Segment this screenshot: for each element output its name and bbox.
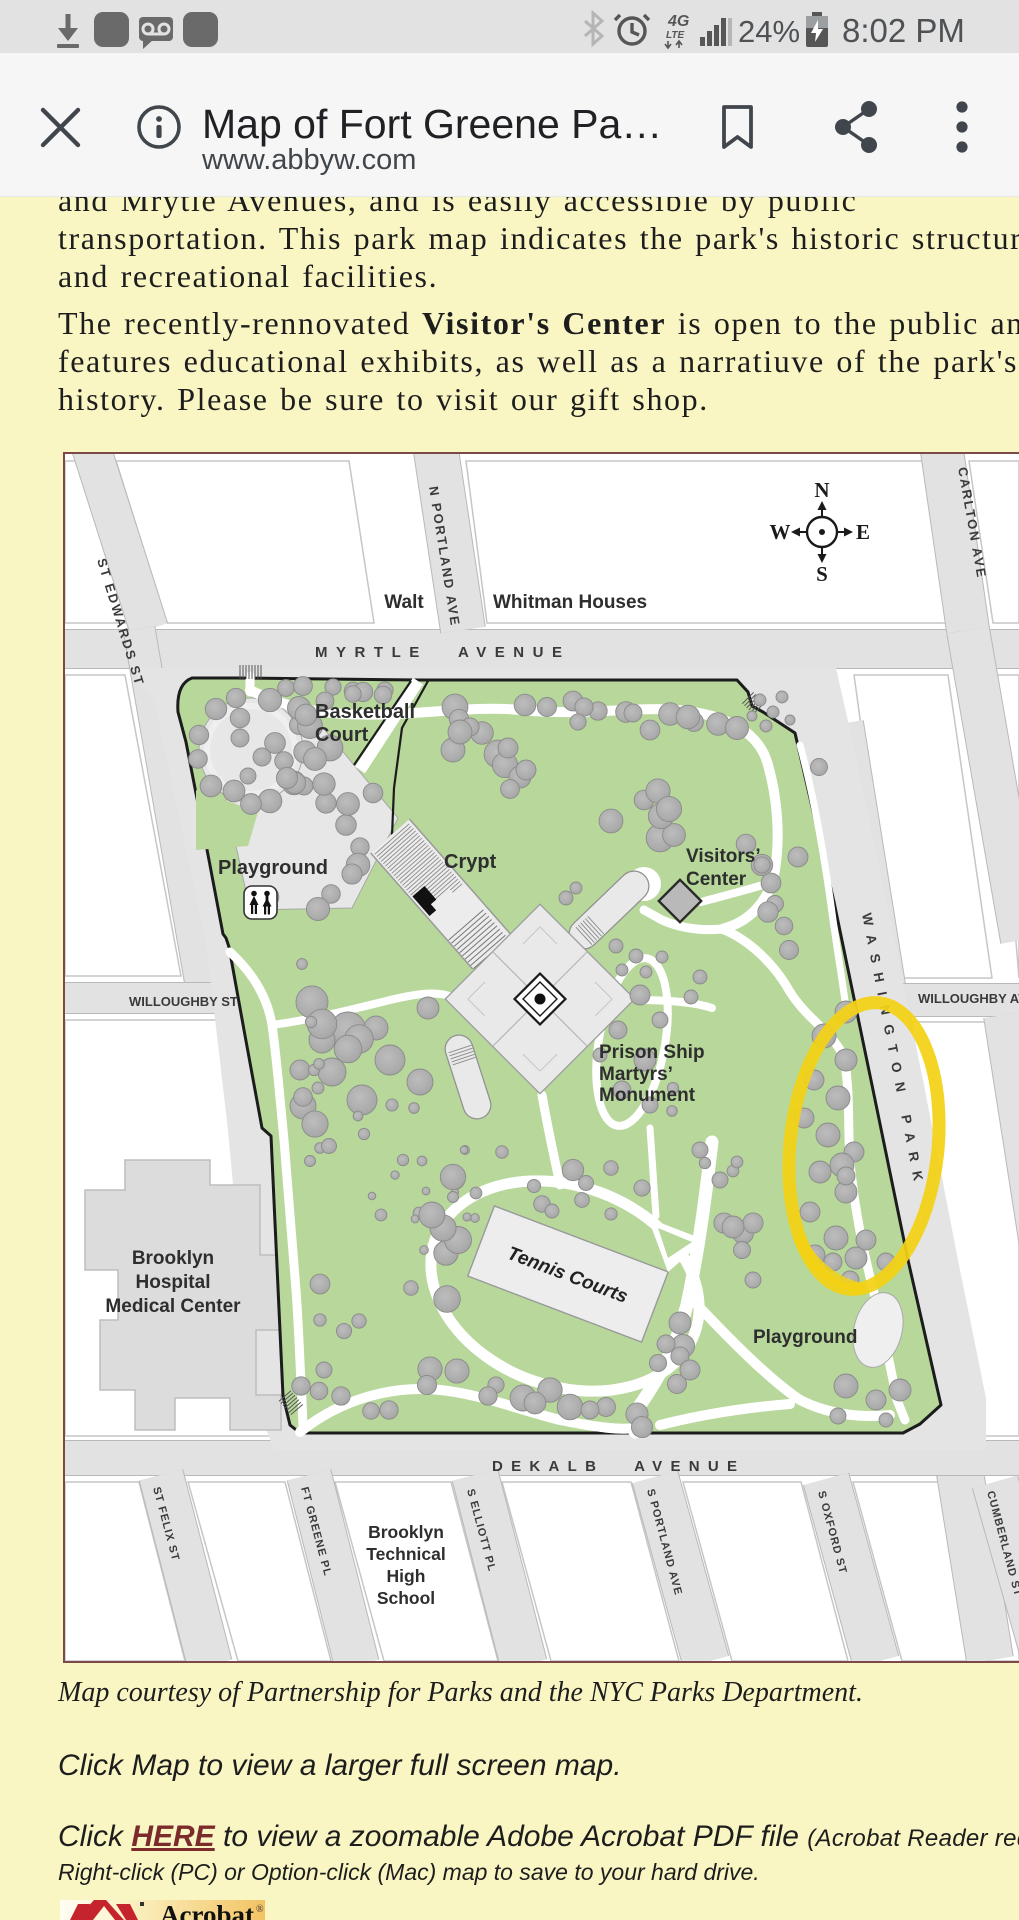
svg-text:www.abbyw.com: www.abbyw.com xyxy=(201,144,416,176)
svg-text:Visitors’: Visitors’ xyxy=(686,846,761,867)
svg-text:4G: 4G xyxy=(667,13,689,30)
svg-text:Medical Center: Medical Center xyxy=(105,1296,241,1317)
svg-text:Monument: Monument xyxy=(599,1085,696,1106)
svg-text:Brooklyn: Brooklyn xyxy=(368,1522,444,1542)
svg-text:S: S xyxy=(816,562,828,586)
svg-text:N: N xyxy=(814,478,829,502)
svg-text:Acrobat: Acrobat xyxy=(160,1900,254,1920)
svg-text:High: High xyxy=(387,1566,426,1586)
svg-text:WILLOUGHBY ST: WILLOUGHBY ST xyxy=(129,994,238,1009)
svg-text:Martyrs’: Martyrs’ xyxy=(599,1064,673,1085)
svg-text:24%: 24% xyxy=(738,14,800,49)
svg-text:School: School xyxy=(377,1588,435,1608)
svg-text:W: W xyxy=(770,520,791,544)
svg-text:Brooklyn: Brooklyn xyxy=(132,1248,214,1269)
svg-text:DEKALB AVENUE: DEKALB AVENUE xyxy=(492,1458,745,1475)
svg-text:Whitman Houses: Whitman Houses xyxy=(493,592,647,613)
svg-text:Playground: Playground xyxy=(753,1327,858,1348)
svg-text:Court: Court xyxy=(315,724,369,746)
svg-text:E: E xyxy=(856,520,870,544)
svg-text:Technical: Technical xyxy=(366,1544,445,1564)
svg-text:Playground: Playground xyxy=(218,857,328,879)
svg-text:Center: Center xyxy=(686,869,747,890)
svg-text:8:02 PM: 8:02 PM xyxy=(842,12,965,49)
svg-text:MYRTLE AVENUE: MYRTLE AVENUE xyxy=(315,644,570,661)
svg-text:LTE: LTE xyxy=(666,30,684,41)
svg-text:®: ® xyxy=(256,1904,264,1915)
svg-text:Hospital: Hospital xyxy=(136,1272,211,1293)
svg-text:WILLOUGHBY AV: WILLOUGHBY AV xyxy=(918,991,1019,1006)
svg-text:Walt: Walt xyxy=(384,592,424,613)
svg-text:Crypt: Crypt xyxy=(444,851,497,873)
svg-text:Map of Fort Greene Pa…: Map of Fort Greene Pa… xyxy=(202,101,662,147)
svg-text:Prison Ship: Prison Ship xyxy=(599,1042,705,1063)
svg-text:Basketball: Basketball xyxy=(315,701,415,723)
